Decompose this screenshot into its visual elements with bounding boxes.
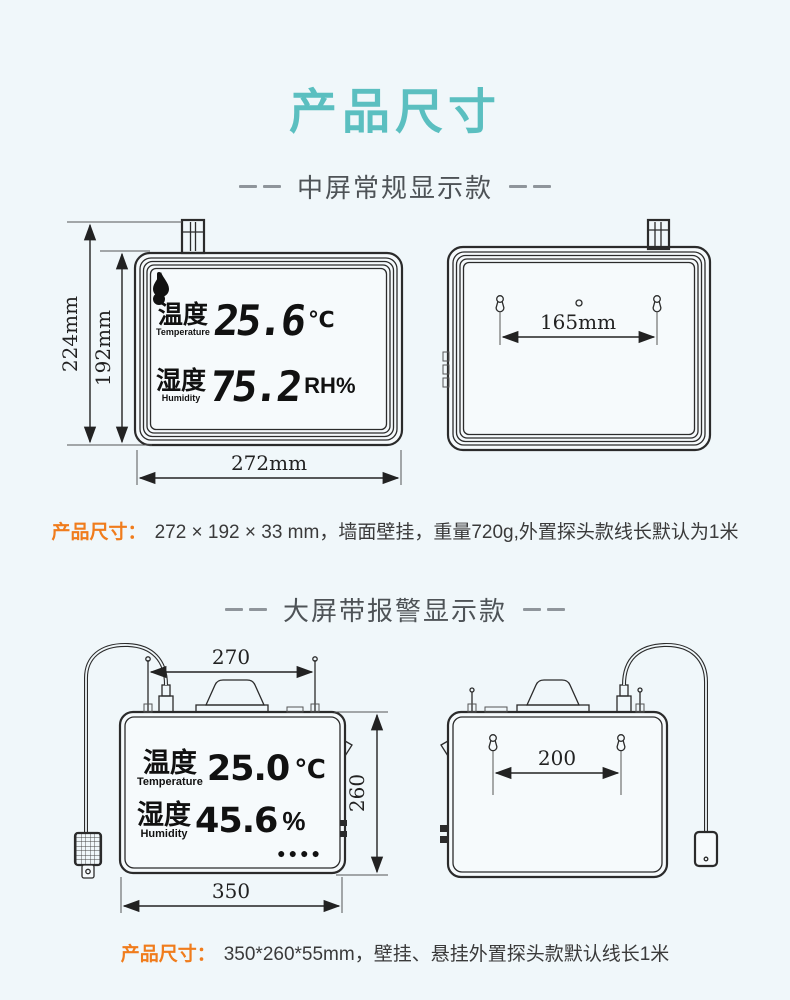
antenna-pin-right [311, 657, 319, 712]
dimension-label-272mm: 272mm [231, 451, 307, 475]
section-header-text: 中屏常规显示款 [297, 168, 493, 205]
back-external-probe-head [695, 832, 717, 866]
back-top-sensor-probe [648, 220, 669, 249]
temperature-row: 温度 Temperature 25.0 ℃ [133, 749, 333, 789]
external-probe-head [75, 833, 101, 878]
dash-decoration-left [239, 185, 281, 188]
alarm-indicator-dots: ●●●● [277, 845, 323, 861]
antenna-pin-left [144, 657, 152, 712]
medium-model-spec: 产品尺寸：272 × 192 × 33 mm，墙面壁挂，重量720g,外置探头款… [0, 517, 790, 544]
large-model-spec: 产品尺寸：350*260*55mm，壁挂、悬挂外置探头款默认线长1米 [0, 939, 790, 966]
medium-model-diagram: 165mm 224mm 192mm 272mm [0, 208, 790, 508]
dimension-label-270: 270 [212, 645, 250, 669]
section-header-large-model: 大屏带报警显示款 [0, 591, 790, 628]
medium-model-line-art: 165mm 224mm 192mm 272mm [0, 208, 790, 508]
temperature-unit: ℃ [294, 754, 325, 785]
droplet-icon [152, 270, 170, 298]
temperature-label: 温度 Temperature [156, 303, 210, 337]
temperature-value: 25.0 [207, 749, 289, 789]
dash-decoration-right [509, 185, 551, 188]
back-device-frame [448, 247, 710, 450]
product-dimension-page: 产品尺寸 中屏常规显示款 [0, 0, 790, 1000]
dimension-top-width: 270 [151, 645, 312, 672]
large-display-readout: 温度 Temperature 25.0 ℃ 湿度 Humidity 45.6 %… [133, 725, 333, 865]
section-header-text: 大屏带报警显示款 [283, 591, 507, 628]
humidity-label: 湿度 Humidity [137, 802, 191, 840]
alarm-buzzer-dome [196, 680, 303, 712]
dimension-label-260: 260 [345, 774, 369, 812]
dimension-label-165mm: 165mm [540, 310, 616, 334]
humidity-unit: RH% [304, 373, 355, 399]
temperature-row: 温度 Temperature 25.6 ℃ [152, 296, 385, 345]
large-back-frame [448, 712, 667, 877]
dimension-label-224mm: 224mm [58, 296, 82, 372]
large-model-diagram: 270 260 350 200 [0, 630, 790, 960]
front-display-readout: 温度 Temperature 25.6 ℃ 湿度 Humidity 75.2 R… [152, 270, 385, 432]
temperature-label: 温度 Temperature [137, 750, 203, 788]
dimension-body-width: 350 [121, 877, 342, 913]
back-alarm-buzzer-dome [485, 680, 589, 712]
dimension-label-350: 350 [212, 879, 250, 903]
spec-label: 产品尺寸： [121, 944, 216, 965]
dash-decoration-left [225, 608, 267, 611]
humidity-value: 75.2 [207, 362, 302, 411]
back-antenna-pin-right [636, 688, 644, 712]
humidity-label: 湿度 Humidity [156, 369, 206, 403]
dash-decoration-right [523, 608, 565, 611]
humidity-unit: % [282, 806, 305, 837]
page-title: 产品尺寸 [0, 72, 790, 142]
back-cable-connector [617, 685, 631, 712]
dimension-body-width: 272mm [137, 450, 401, 485]
temperature-value: 25.6 [211, 296, 306, 345]
humidity-row: 湿度 Humidity 45.6 % [133, 801, 333, 841]
back-antenna-pin-left [468, 688, 476, 712]
dimension-label-200: 200 [538, 746, 576, 770]
section-header-medium-model: 中屏常规显示款 [0, 168, 790, 205]
spec-text: 350*260*55mm，壁挂、悬挂外置探头款默认线长1米 [224, 944, 670, 965]
humidity-row: 湿度 Humidity 75.2 RH% [152, 362, 385, 411]
temperature-unit: ℃ [308, 307, 335, 333]
large-model-line-art: 270 260 350 200 [0, 630, 790, 960]
spec-label: 产品尺寸： [52, 522, 147, 543]
humidity-value: 45.6 [195, 801, 277, 841]
probe-cable-connector [159, 685, 173, 712]
top-sensor-probe [182, 220, 204, 253]
dimension-label-192mm: 192mm [91, 310, 115, 386]
spec-text: 272 × 192 × 33 mm，墙面壁挂，重量720g,外置探头款线长默认为… [155, 522, 739, 543]
back-side-marks [440, 741, 448, 843]
